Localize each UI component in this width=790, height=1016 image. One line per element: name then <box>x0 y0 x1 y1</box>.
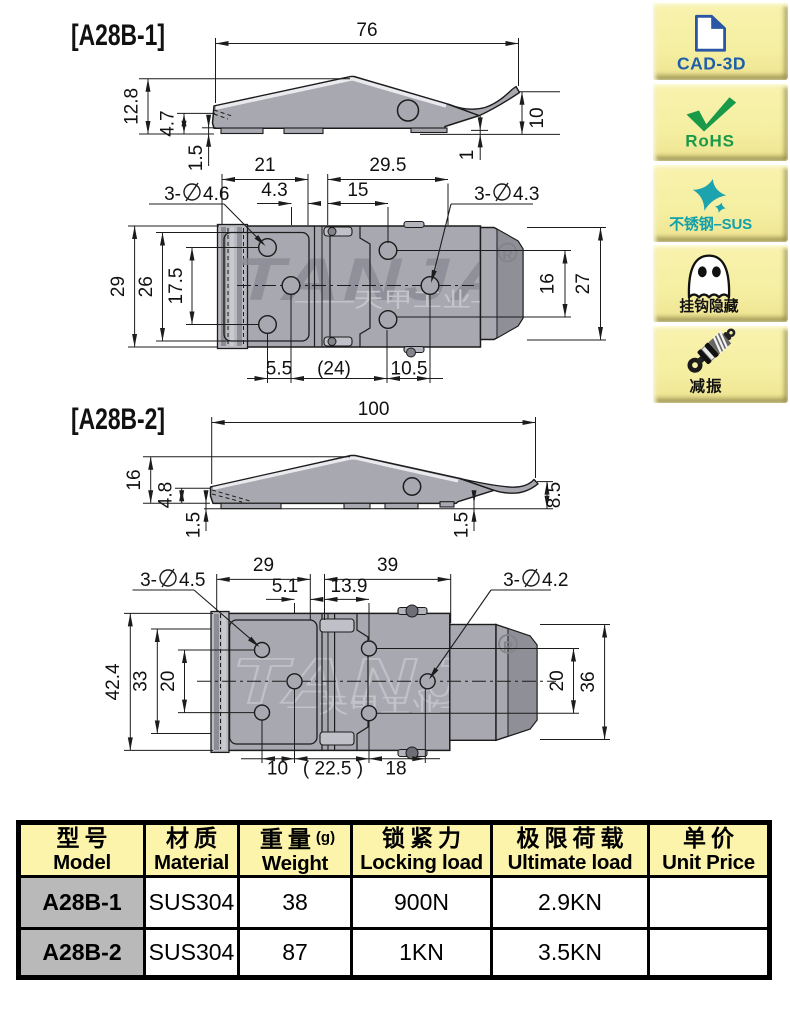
svg-text:4.7: 4.7 <box>158 110 179 136</box>
svg-text:3-: 3- <box>164 184 181 205</box>
svg-text:3-: 3- <box>474 184 491 205</box>
svg-text:17.5: 17.5 <box>166 268 187 305</box>
svg-text:18: 18 <box>385 759 406 780</box>
svg-text:挂钩隐藏: 挂钩隐藏 <box>679 297 738 315</box>
svg-text:(24): (24) <box>317 359 351 380</box>
svg-text:[A28B-2]: [A28B-2] <box>71 403 165 436</box>
svg-text:36: 36 <box>578 671 599 692</box>
svg-text:不锈钢–SUS: 不锈钢–SUS <box>669 215 752 233</box>
svg-text:76: 76 <box>356 20 377 41</box>
svg-text:1.5: 1.5 <box>186 145 207 171</box>
svg-text:33: 33 <box>131 671 152 692</box>
svg-text:16: 16 <box>538 273 559 294</box>
svg-text:4.6: 4.6 <box>203 184 229 205</box>
svg-text:39: 39 <box>377 555 398 576</box>
svg-text:R: R <box>503 638 513 654</box>
svg-text:20: 20 <box>158 671 179 692</box>
svg-text:5.1: 5.1 <box>272 576 298 597</box>
svg-text:5.5: 5.5 <box>266 359 292 380</box>
svg-text:29.5: 29.5 <box>369 155 406 176</box>
svg-text:100: 100 <box>358 399 390 420</box>
svg-text:CAD-3D: CAD-3D <box>677 54 746 74</box>
svg-text:1.5: 1.5 <box>184 512 205 538</box>
svg-text:4.2: 4.2 <box>542 570 568 591</box>
svg-text:4.3: 4.3 <box>513 184 539 205</box>
svg-text:4.5: 4.5 <box>179 570 205 591</box>
svg-text:4.8: 4.8 <box>156 482 177 508</box>
svg-text:1: 1 <box>457 150 478 161</box>
svg-text:RoHS: RoHS <box>685 132 734 151</box>
svg-text:3-: 3- <box>503 570 520 591</box>
svg-text:3-: 3- <box>140 570 157 591</box>
svg-text:15: 15 <box>347 180 368 201</box>
svg-text:( 22.5 ): ( 22.5 ) <box>303 759 363 780</box>
svg-text:42.4: 42.4 <box>103 663 124 700</box>
svg-text:12.8: 12.8 <box>122 88 143 125</box>
svg-text:减振: 减振 <box>689 377 722 396</box>
svg-text:20: 20 <box>547 670 568 691</box>
svg-text:27: 27 <box>573 273 594 294</box>
svg-text:8.5: 8.5 <box>544 482 565 508</box>
svg-text:1.5: 1.5 <box>452 512 473 538</box>
svg-text:R: R <box>502 247 512 263</box>
svg-text:26: 26 <box>136 276 157 297</box>
svg-text:4.3: 4.3 <box>261 180 287 201</box>
svg-text:——天甲工业—: ——天甲工业— <box>295 289 501 312</box>
svg-text:13.9: 13.9 <box>331 576 368 597</box>
svg-text:16: 16 <box>124 469 145 490</box>
svg-text:[A28B-1]: [A28B-1] <box>71 19 165 52</box>
svg-text:21: 21 <box>254 155 275 176</box>
svg-text:10: 10 <box>527 107 548 128</box>
svg-text:10: 10 <box>267 759 288 780</box>
svg-text:29: 29 <box>108 276 129 297</box>
svg-text:29: 29 <box>253 555 274 576</box>
svg-text:10.5: 10.5 <box>391 359 428 380</box>
